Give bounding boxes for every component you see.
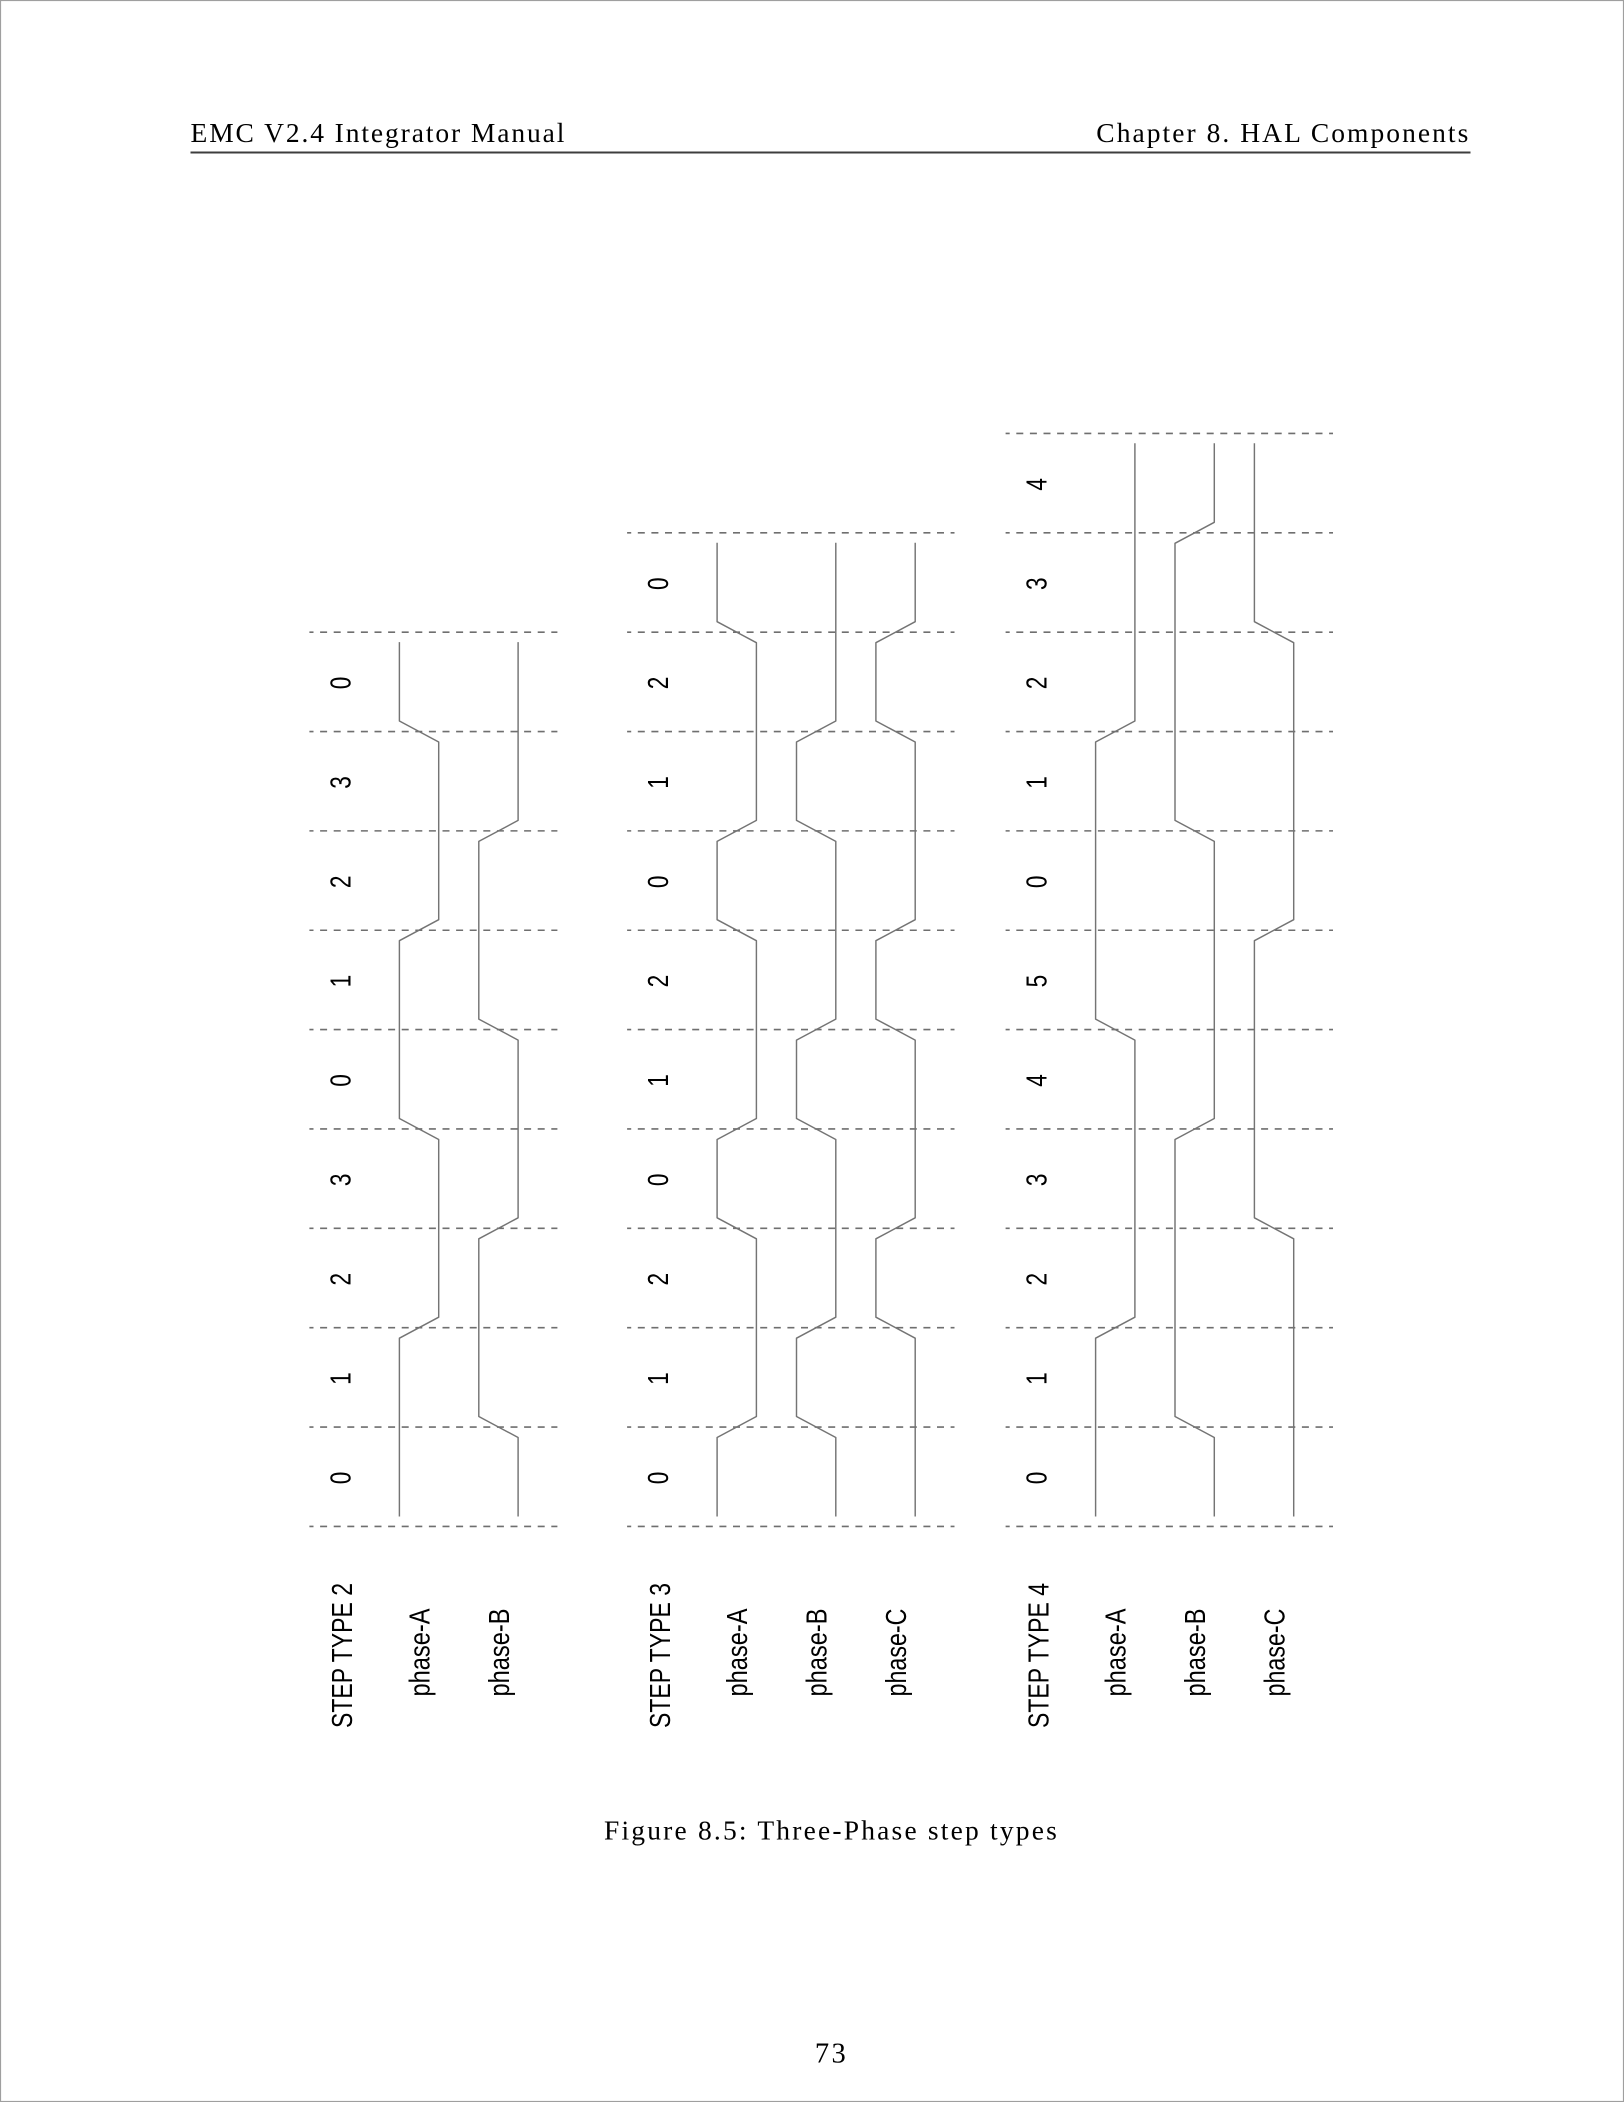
- svg-text:phase-B: phase-B: [1180, 1609, 1212, 1697]
- svg-text:1: 1: [1022, 776, 1054, 789]
- svg-text:phase-A: phase-A: [404, 1609, 436, 1697]
- svg-text:2: 2: [643, 677, 675, 690]
- svg-text:4: 4: [1022, 1074, 1054, 1087]
- svg-text:phase-C: phase-C: [1259, 1609, 1291, 1697]
- svg-text:Chapter 8. HAL Components: Chapter 8. HAL Components: [1096, 117, 1470, 148]
- svg-text:73: 73: [815, 2039, 848, 2070]
- svg-text:phase-A: phase-A: [1101, 1609, 1133, 1697]
- svg-text:STEP TYPE 2: STEP TYPE 2: [327, 1583, 359, 1728]
- svg-text:2: 2: [1022, 677, 1054, 690]
- svg-text:phase-A: phase-A: [722, 1609, 754, 1697]
- svg-text:2: 2: [1022, 1273, 1054, 1286]
- svg-text:5: 5: [1022, 975, 1054, 988]
- svg-text:0: 0: [643, 1472, 675, 1485]
- svg-text:0: 0: [1022, 876, 1054, 889]
- svg-text:1: 1: [643, 1372, 675, 1385]
- svg-text:2: 2: [643, 1273, 675, 1286]
- svg-text:1: 1: [643, 1074, 675, 1087]
- svg-text:0: 0: [643, 1174, 675, 1187]
- svg-text:STEP TYPE 3: STEP TYPE 3: [645, 1583, 677, 1728]
- svg-text:0: 0: [643, 876, 675, 889]
- svg-text:2: 2: [325, 876, 357, 889]
- svg-text:0: 0: [643, 577, 675, 590]
- svg-text:phase-C: phase-C: [881, 1609, 913, 1697]
- svg-text:0: 0: [325, 677, 357, 690]
- svg-text:Figure 8.5: Three-Phase step t: Figure 8.5: Three-Phase step types: [604, 1814, 1059, 1845]
- svg-text:0: 0: [325, 1074, 357, 1087]
- svg-text:1: 1: [643, 776, 675, 789]
- svg-text:0: 0: [325, 1472, 357, 1485]
- svg-text:EMC V2.4 Integrator Manual: EMC V2.4 Integrator Manual: [191, 117, 567, 148]
- svg-text:3: 3: [325, 776, 357, 789]
- svg-text:3: 3: [1022, 577, 1054, 590]
- svg-text:STEP TYPE 4: STEP TYPE 4: [1023, 1583, 1055, 1728]
- svg-text:4: 4: [1022, 478, 1054, 491]
- svg-text:2: 2: [325, 1273, 357, 1286]
- svg-text:1: 1: [1022, 1372, 1054, 1385]
- svg-text:1: 1: [325, 1372, 357, 1385]
- svg-text:3: 3: [325, 1174, 357, 1187]
- svg-text:phase-B: phase-B: [484, 1609, 516, 1697]
- svg-text:3: 3: [1022, 1174, 1054, 1187]
- svg-text:phase-B: phase-B: [802, 1609, 834, 1697]
- svg-text:2: 2: [643, 975, 675, 988]
- svg-text:0: 0: [1022, 1472, 1054, 1485]
- svg-text:1: 1: [325, 975, 357, 988]
